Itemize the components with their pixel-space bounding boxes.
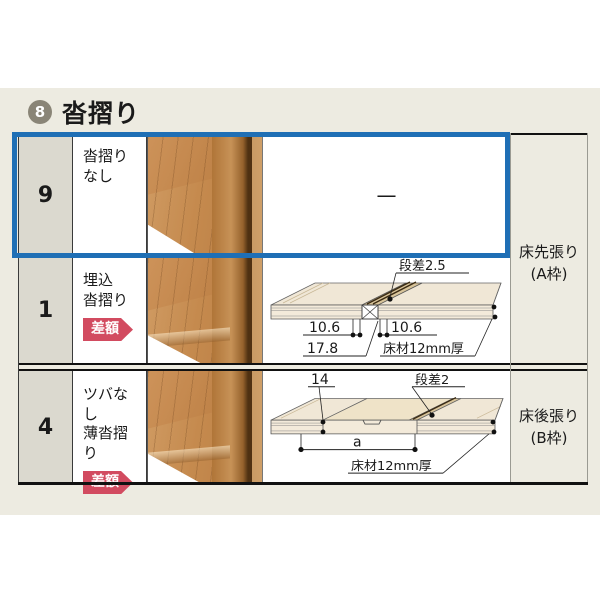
row4-number: 4 bbox=[18, 371, 73, 483]
section-number-icon: 8 bbox=[28, 100, 52, 124]
row1-photo bbox=[147, 257, 263, 363]
row1-label: 埋込 沓摺り 差額 bbox=[73, 257, 147, 363]
options-table: 9 沓摺り なし — 1 埋込 沓摺り 差額 bbox=[18, 133, 588, 485]
svg-text:10.6: 10.6 bbox=[309, 320, 340, 336]
thin-sill-section-diagram: 14 段差2 a 床材12mm厚 bbox=[263, 371, 510, 483]
frame-type-b-cell: 床後張り (B枠) bbox=[510, 371, 588, 483]
photo-door-frame bbox=[212, 257, 262, 363]
svg-text:a: a bbox=[353, 435, 362, 451]
frame-type-a-cell: 床先張り (A枠) bbox=[510, 133, 588, 363]
price-difference-badge: 差額 bbox=[83, 318, 133, 341]
embedded-sill-section-diagram: 段差2.5 10.6 10.6 17.8 床材1 bbox=[263, 257, 510, 363]
svg-text:段差2: 段差2 bbox=[415, 373, 449, 388]
row4-label: ツバなし 薄沓摺り 差額 bbox=[73, 371, 147, 483]
photo-door-frame bbox=[212, 371, 262, 483]
row1-number: 1 bbox=[18, 257, 73, 363]
row-separator-double-line bbox=[18, 363, 588, 366]
svg-text:14: 14 bbox=[311, 372, 329, 388]
row1-diagram-cell: 段差2.5 10.6 10.6 17.8 床材1 bbox=[263, 257, 510, 363]
table-bottom-border bbox=[18, 482, 588, 485]
row4-photo bbox=[147, 371, 263, 483]
selected-row-highlight[interactable] bbox=[12, 132, 510, 258]
svg-text:17.8: 17.8 bbox=[307, 341, 338, 357]
row4-diagram-cell: 14 段差2 a 床材12mm厚 bbox=[263, 371, 510, 483]
svg-text:段差2.5: 段差2.5 bbox=[399, 259, 446, 274]
section-header: 8 沓摺り bbox=[28, 94, 140, 130]
svg-text:10.6: 10.6 bbox=[391, 320, 422, 336]
svg-text:床材12mm厚: 床材12mm厚 bbox=[351, 459, 432, 474]
frame-column-divider bbox=[510, 133, 511, 482]
page-title: 沓摺り bbox=[62, 94, 140, 130]
table-right-border bbox=[587, 133, 588, 482]
svg-text:床材12mm厚: 床材12mm厚 bbox=[383, 342, 464, 357]
